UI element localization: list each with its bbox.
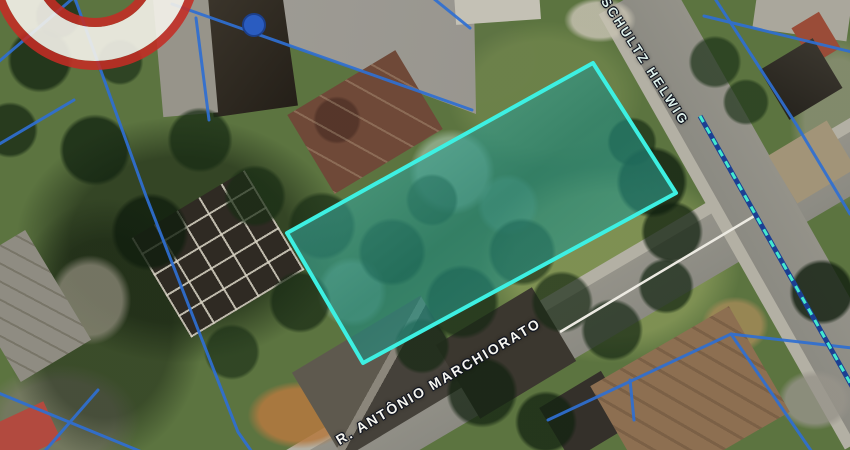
highlighted-parcel[interactable]	[287, 63, 676, 363]
map-canvas[interactable]: SCHULTZ HELWIG R. ANTÔNIO MARCHIORATO	[0, 0, 850, 450]
water-tank-icon	[243, 14, 265, 36]
